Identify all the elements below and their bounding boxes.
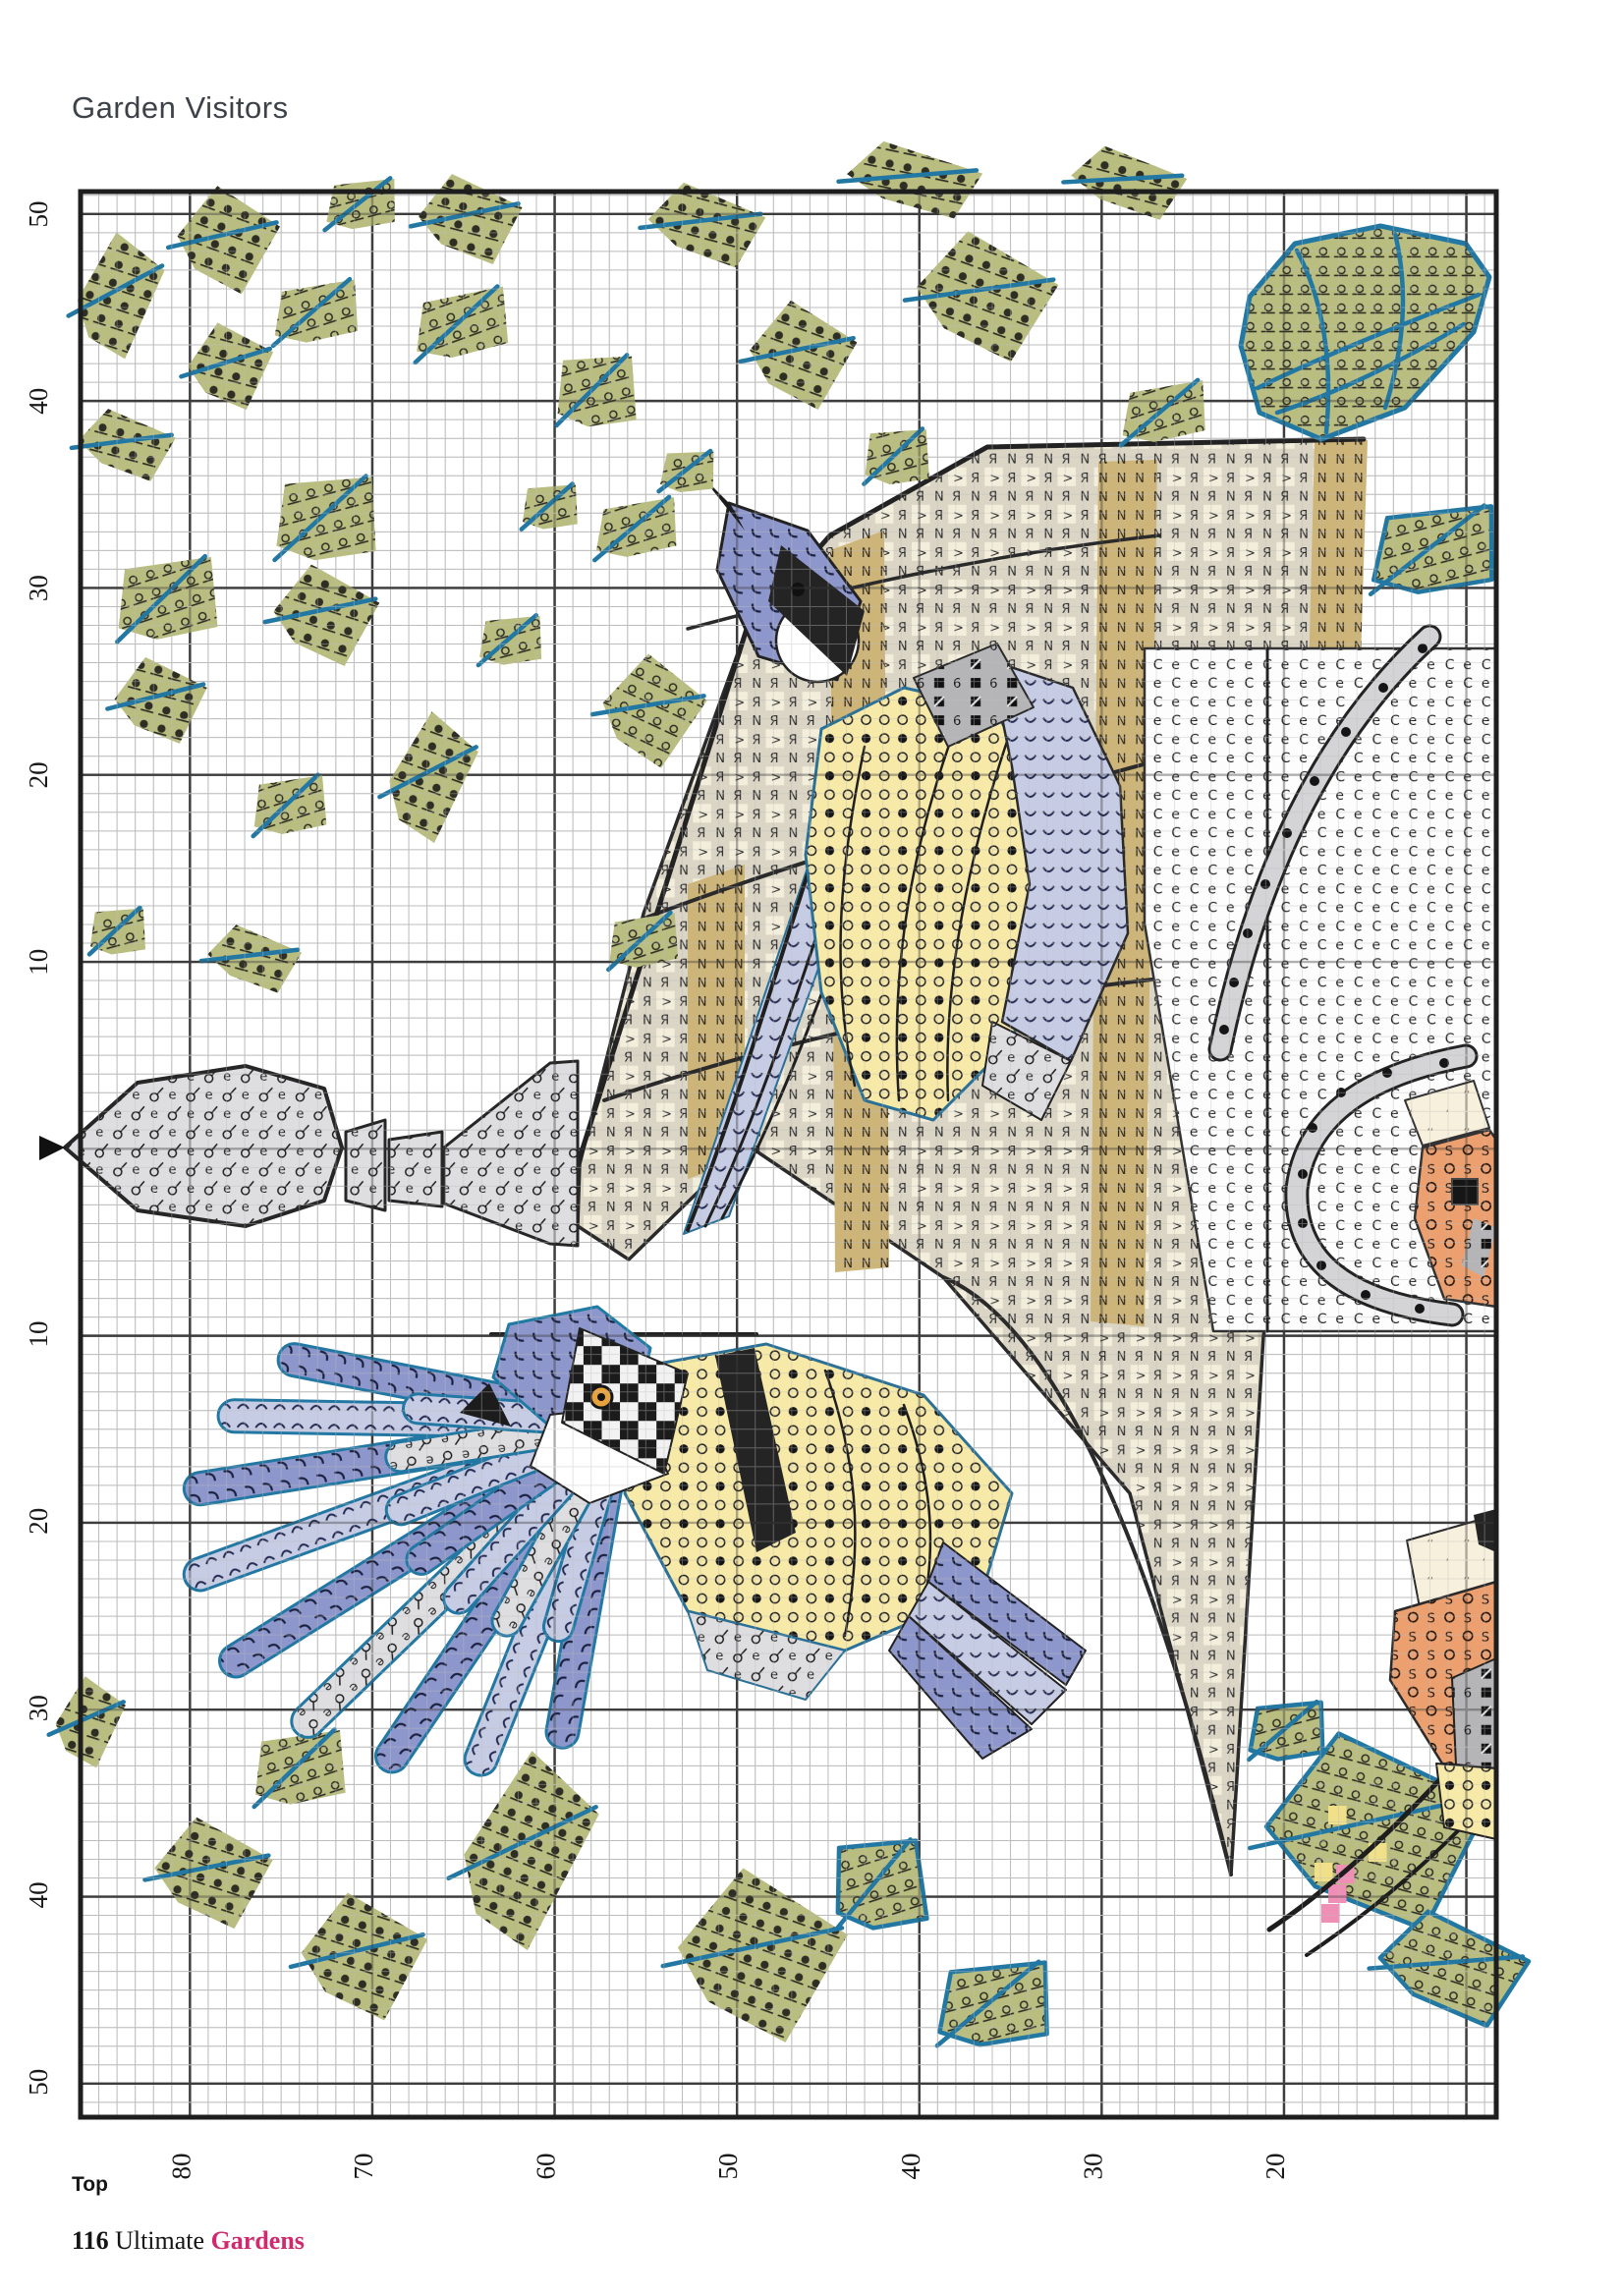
- column-label: 70: [349, 2154, 378, 2180]
- motif-circle: [597, 1393, 605, 1401]
- page-title: Garden Visitors: [72, 90, 289, 126]
- row-label: 10: [24, 949, 53, 976]
- page-footer: 116 Ultimate Gardens: [72, 2226, 305, 2256]
- magazine-page: Я N > Я N C e e C e: [0, 0, 1623, 2296]
- row-label: 20: [24, 1508, 53, 1535]
- column-label: 80: [166, 2154, 196, 2180]
- column-label: 30: [1078, 2154, 1107, 2180]
- motif-shape: [389, 1132, 442, 1206]
- footer-brand-name: Gardens: [211, 2226, 305, 2255]
- stitch-chart: Я N > Я N C e e C e: [0, 0, 1623, 2296]
- row-label: 20: [24, 761, 53, 788]
- row-label: 10: [24, 1321, 53, 1348]
- motif-shape: [346, 1120, 385, 1210]
- row-label: 30: [24, 1695, 53, 1721]
- footer-page-number: 116: [72, 2226, 109, 2255]
- row-label: 40: [24, 1881, 53, 1908]
- column-label: 40: [896, 2154, 925, 2180]
- row-label: 30: [24, 575, 53, 601]
- column-label: 20: [1260, 2154, 1290, 2180]
- top-orientation-label: Top: [72, 2173, 108, 2197]
- motif-circle: [791, 583, 805, 596]
- row-label: 50: [24, 201, 53, 228]
- row-label: 50: [24, 2069, 53, 2096]
- row-label: 40: [24, 388, 53, 415]
- column-label: 50: [713, 2154, 743, 2180]
- motif-shape: [1452, 1658, 1496, 1768]
- footer-magazine-name: Ultimate: [115, 2226, 204, 2255]
- column-label: 60: [532, 2154, 561, 2180]
